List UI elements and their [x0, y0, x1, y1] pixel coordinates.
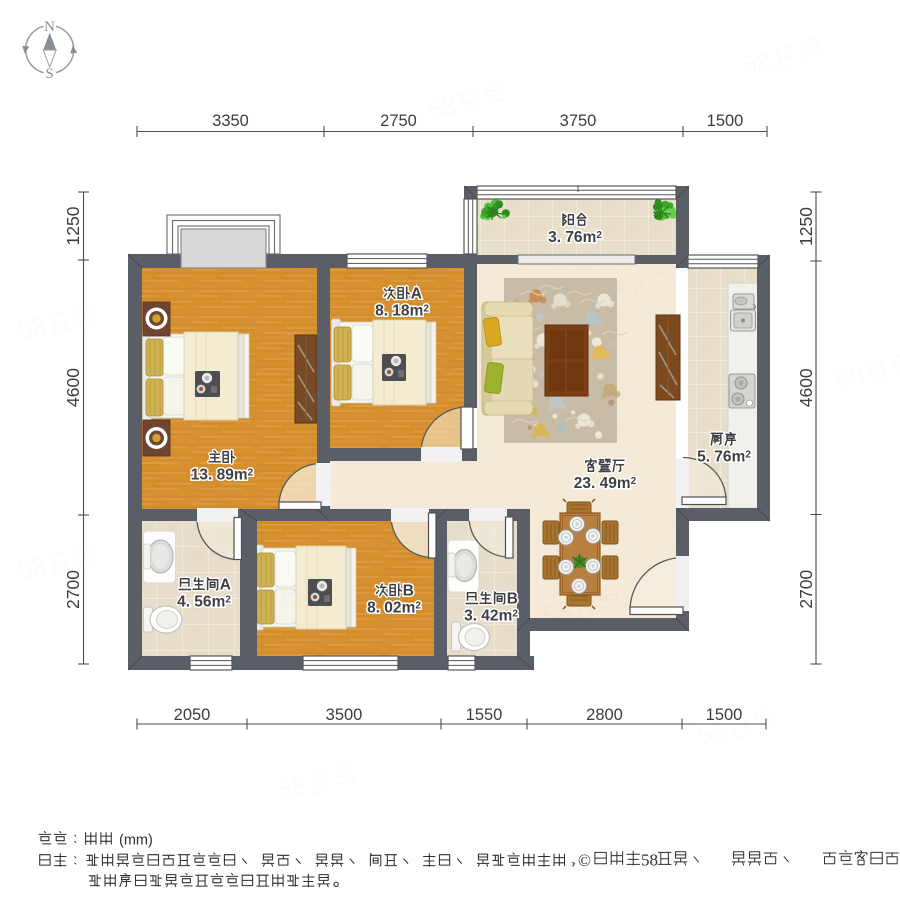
- svg-text:N: N: [44, 19, 55, 35]
- svg-text:1250: 1250: [63, 206, 83, 245]
- svg-text:2750: 2750: [380, 112, 417, 130]
- svg-text:58: 58: [641, 851, 658, 870]
- svg-text:S: S: [45, 66, 53, 82]
- svg-text:3500: 3500: [326, 706, 363, 724]
- svg-text:1250: 1250: [796, 207, 816, 246]
- svg-text:8. 18m2: 8. 18m2: [375, 303, 429, 320]
- svg-text:3750: 3750: [560, 112, 597, 130]
- svg-text:3350: 3350: [212, 112, 249, 130]
- svg-text:B: B: [403, 583, 414, 600]
- svg-text:A: A: [411, 286, 422, 303]
- svg-text:(mm): (mm): [119, 833, 153, 849]
- svg-text:3. 76m2: 3. 76m2: [548, 229, 602, 246]
- svg-text:2800: 2800: [586, 706, 623, 724]
- svg-text:4600: 4600: [63, 368, 83, 407]
- svg-text:4. 56m2: 4. 56m2: [177, 594, 231, 611]
- svg-text:23. 49m2: 23. 49m2: [574, 475, 637, 492]
- svg-text:4600: 4600: [796, 368, 816, 407]
- svg-text:©: ©: [578, 851, 591, 870]
- svg-text:3. 42m2: 3. 42m2: [464, 608, 518, 625]
- svg-text:8. 02m2: 8. 02m2: [367, 600, 421, 617]
- svg-text:2050: 2050: [174, 706, 211, 724]
- svg-text:A: A: [220, 577, 231, 594]
- svg-text:2700: 2700: [796, 569, 816, 608]
- svg-text:13. 89m2: 13. 89m2: [191, 467, 254, 484]
- svg-text:1550: 1550: [466, 706, 503, 724]
- svg-text:2700: 2700: [63, 570, 83, 609]
- svg-text:1500: 1500: [707, 112, 744, 130]
- svg-text:B: B: [507, 591, 518, 608]
- svg-text:5. 76m2: 5. 76m2: [697, 449, 751, 466]
